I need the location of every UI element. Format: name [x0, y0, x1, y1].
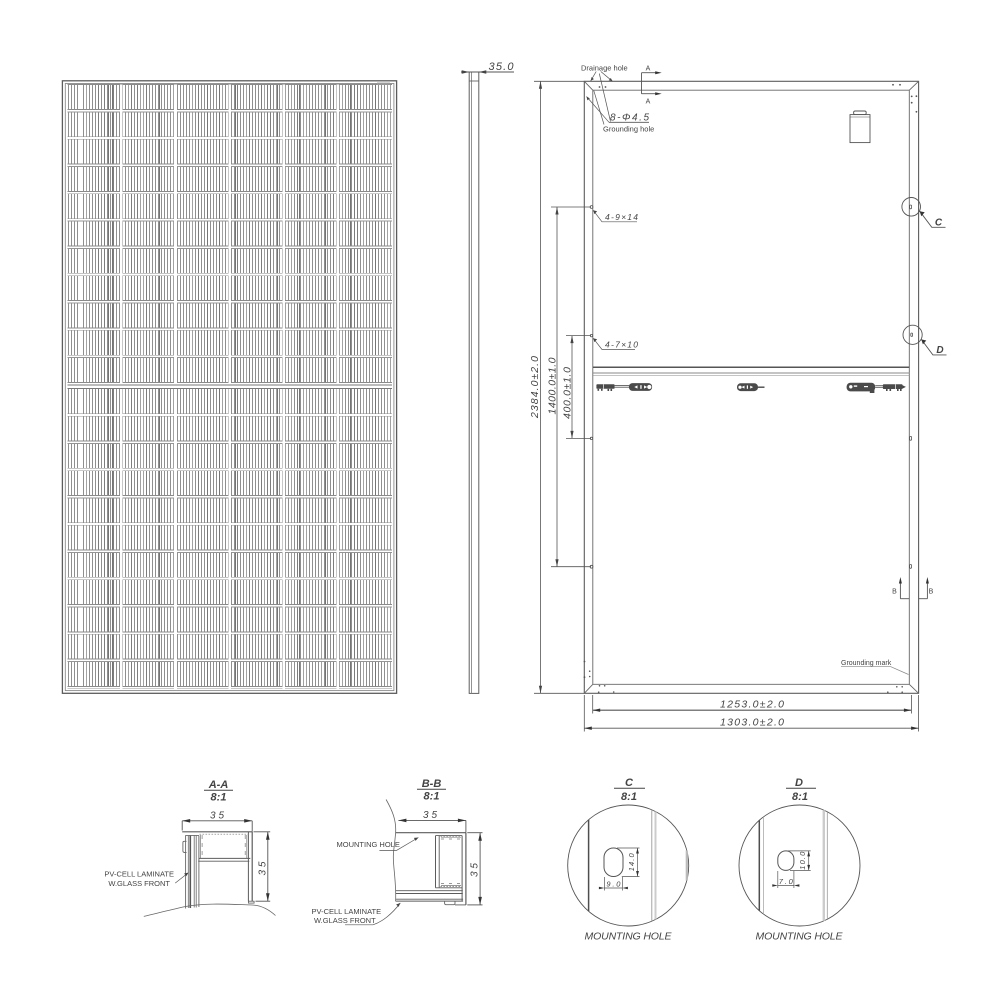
svg-text:W.GLASS FRONT: W.GLASS FRONT: [108, 879, 170, 888]
svg-text:10.0: 10.0: [798, 851, 807, 870]
svg-text:8:1: 8:1: [621, 791, 637, 803]
svg-text:8:1: 8:1: [792, 791, 808, 803]
svg-text:C: C: [935, 217, 943, 228]
svg-text:1400.0±1.0: 1400.0±1.0: [547, 357, 559, 414]
svg-text:D: D: [936, 345, 943, 356]
svg-text:Grounding mark: Grounding mark: [841, 660, 892, 667]
svg-text:Grounding hole: Grounding hole: [603, 124, 654, 133]
svg-text:A: A: [646, 99, 651, 106]
svg-text:14.0: 14.0: [627, 852, 636, 871]
svg-text:W.GLASS FRONT: W.GLASS FRONT: [314, 916, 376, 925]
svg-text:MOUNTING HOLE: MOUNTING HOLE: [585, 931, 673, 943]
svg-text:Drainage hole: Drainage hole: [581, 64, 628, 73]
svg-text:D: D: [795, 777, 803, 789]
svg-text:B: B: [892, 589, 897, 596]
svg-text:C: C: [625, 777, 634, 789]
svg-text:B-B: B-B: [422, 778, 442, 790]
svg-text:MOUNTING HOLE: MOUNTING HOLE: [756, 931, 844, 943]
svg-text:35.0: 35.0: [489, 61, 515, 73]
svg-text:A: A: [646, 66, 651, 73]
svg-text:PV-CELL LAMINATE: PV-CELL LAMINATE: [104, 869, 174, 878]
svg-text:PV-CELL LAMINATE: PV-CELL LAMINATE: [312, 907, 382, 916]
svg-text:MOUNTING HOLE: MOUNTING HOLE: [337, 840, 400, 849]
svg-text:8:1: 8:1: [211, 792, 227, 804]
svg-text:7.0: 7.0: [779, 877, 794, 886]
svg-text:8:1: 8:1: [424, 791, 440, 803]
svg-text:1253.0±2.0: 1253.0±2.0: [720, 699, 784, 711]
svg-text:1303.0±2.0: 1303.0±2.0: [720, 717, 784, 729]
svg-text:A-A: A-A: [208, 779, 229, 791]
svg-text:B: B: [929, 589, 934, 596]
svg-text:400.0±1.0: 400.0±1.0: [562, 367, 574, 419]
svg-text:9.0: 9.0: [606, 879, 621, 888]
